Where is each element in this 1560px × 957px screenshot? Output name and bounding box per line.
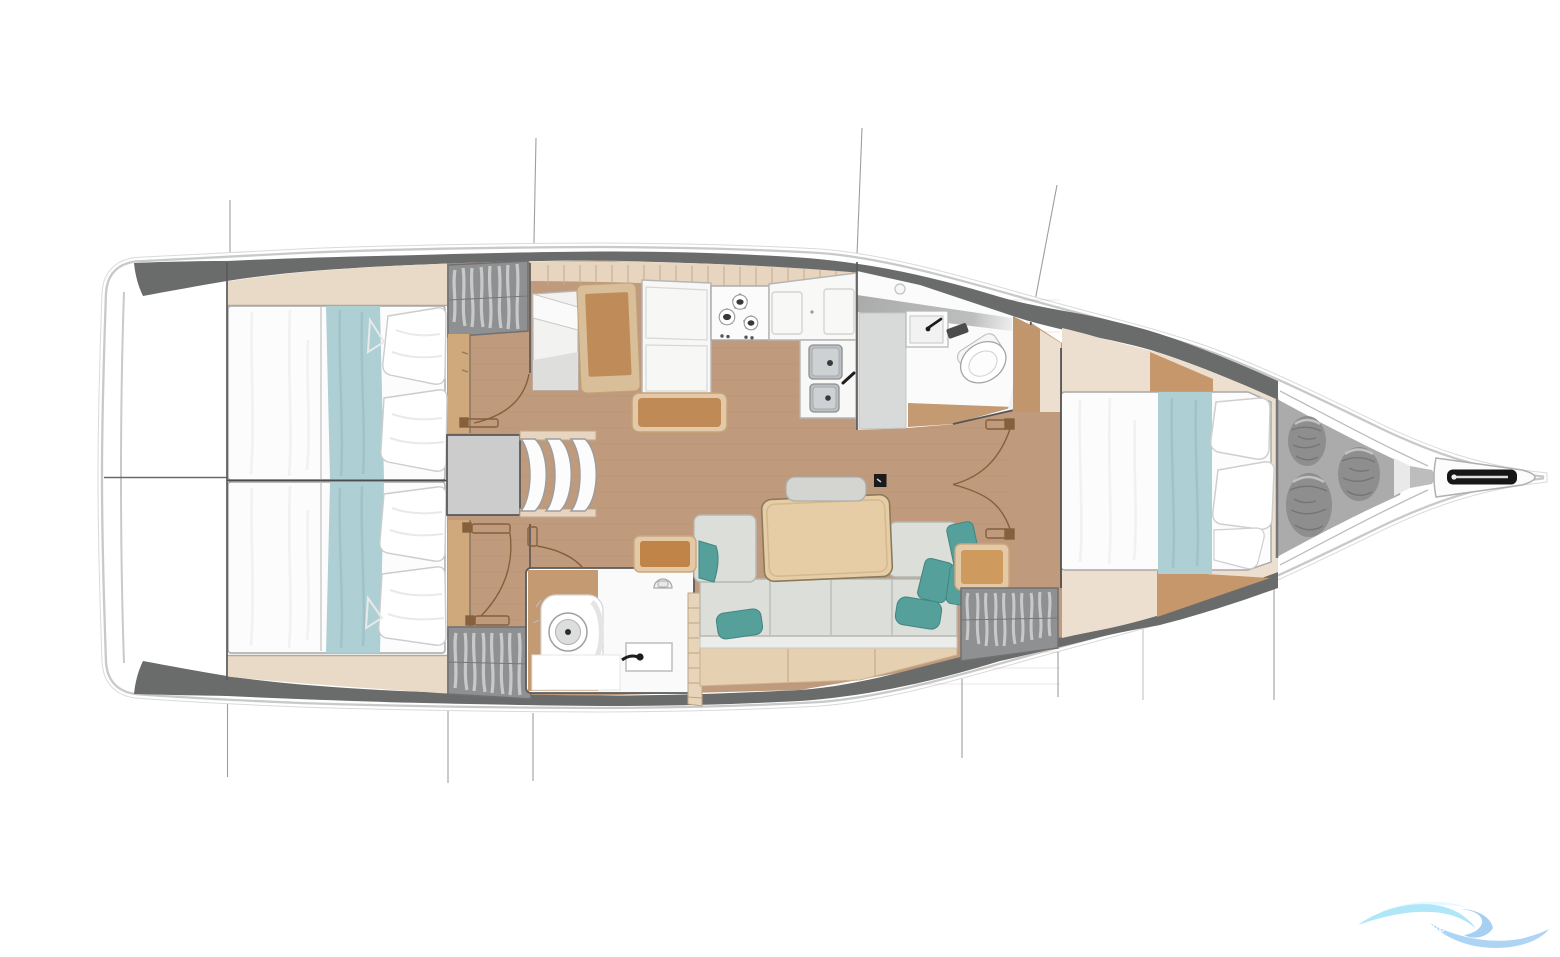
svg-text:sailwave: sailwave [1396, 921, 1446, 935]
